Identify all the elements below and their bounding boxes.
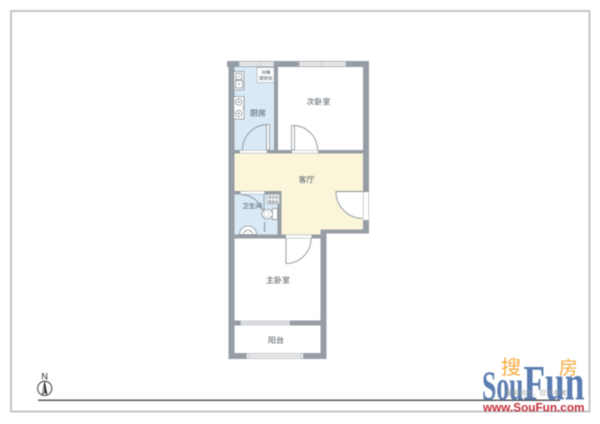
svg-text:N: N: [41, 372, 48, 382]
svg-text:www.SouFun.com: www.SouFun.com: [482, 403, 585, 415]
